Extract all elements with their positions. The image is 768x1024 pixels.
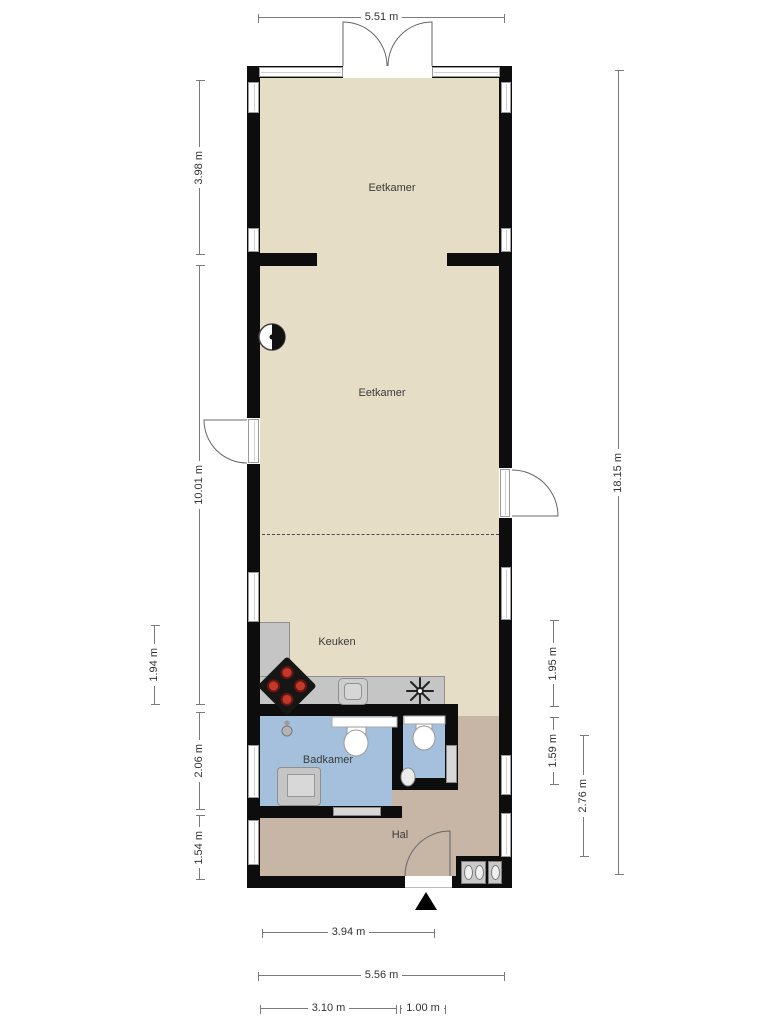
sink-basin [344,683,362,700]
dimension-left-hall: 1.54 m [192,815,206,880]
window [248,745,259,798]
dimension-label: 10.01 m [193,461,205,509]
dimension-top-width: 5.51 m [258,10,505,24]
room-label-dining-main: Eetkamer [358,387,405,399]
window [248,572,259,622]
dimension-label: 2.76 m [577,775,589,817]
washbasin-basin [287,774,315,797]
washer-drum [464,865,473,880]
room-label-bathroom: Badkamer [303,754,353,766]
door-swing-icon [204,420,247,463]
dimension-label: 1.95 m [547,643,559,685]
dimension-bottom-bathroom: 3.10 m [260,1001,397,1015]
dimension-label: 1.59 m [547,730,559,772]
burner-icon [291,677,309,695]
dimension-right-total: 18.15 m [611,70,625,875]
dimension-label: 3.98 m [193,147,205,189]
door-opening-entrance [405,876,452,888]
dimension-right-kitchen: 1.95 m [546,620,560,707]
dimension-left-bathroom: 2.06 m [192,712,206,810]
door-opening-top [343,66,432,78]
dimension-bottom-width: 5.56 m [258,968,505,982]
dryer-drum [491,865,500,880]
window [501,813,511,857]
door-swing-icon [343,22,387,66]
dimension-label: 1.94 m [148,644,160,686]
dimension-left-kitchen: 1.94 m [147,625,161,705]
dimension-right-wc: 1.59 m [546,717,560,785]
dimension-label: 3.94 m [328,926,370,938]
window [501,755,511,795]
window [501,82,511,113]
wall-interior [447,253,503,266]
dimension-right-hall: 2.76 m [576,735,590,857]
washer-drum [475,865,484,880]
window [248,82,259,113]
window [248,820,259,865]
door-wc [446,745,457,783]
dimension-label: 5.51 m [361,11,403,23]
floor-plan: Eetkamer Eetkamer Keuken Badkamer Hal 5.… [0,0,768,1024]
wall-interior [258,253,317,266]
kitchen-sink-icon [338,678,368,705]
burner-icon [264,677,282,695]
burner-icon [278,690,296,708]
window [259,67,343,77]
room-label-kitchen: Keuken [318,636,355,648]
room-label-hall: Hal [392,829,409,841]
dimension-label: 3.10 m [308,1002,350,1014]
room-label-dining-top: Eetkamer [368,182,415,194]
dryer-icon [488,861,502,884]
ceiling-break-line [262,534,499,535]
dimension-label: 5.56 m [361,969,403,981]
burner-icon [278,663,296,681]
dimension-left-main: 10.01 m [192,265,206,705]
floor-wc [403,716,445,778]
dimension-label: 1.00 m [402,1002,444,1014]
door-swing-icon [512,470,558,516]
window [248,228,259,252]
dimension-bottom-hall: 3.94 m [262,925,435,939]
washer-icon [461,861,486,884]
dimension-label: 18.15 m [612,449,624,497]
dimension-label: 2.06 m [193,740,205,782]
glazed-door [500,469,510,517]
dimension-left-upper: 3.98 m [192,80,206,255]
sliding-door-bathroom [333,807,381,816]
window [501,228,511,252]
window [432,67,500,77]
window [501,567,511,620]
glazed-door [248,419,259,463]
dimension-label: 1.54 m [193,827,205,869]
door-swing-icon [388,22,432,66]
washbasin-unit-icon [277,767,321,806]
dimension-bottom-wc: 1.00 m [400,1001,446,1015]
north-arrow-icon [415,892,437,910]
